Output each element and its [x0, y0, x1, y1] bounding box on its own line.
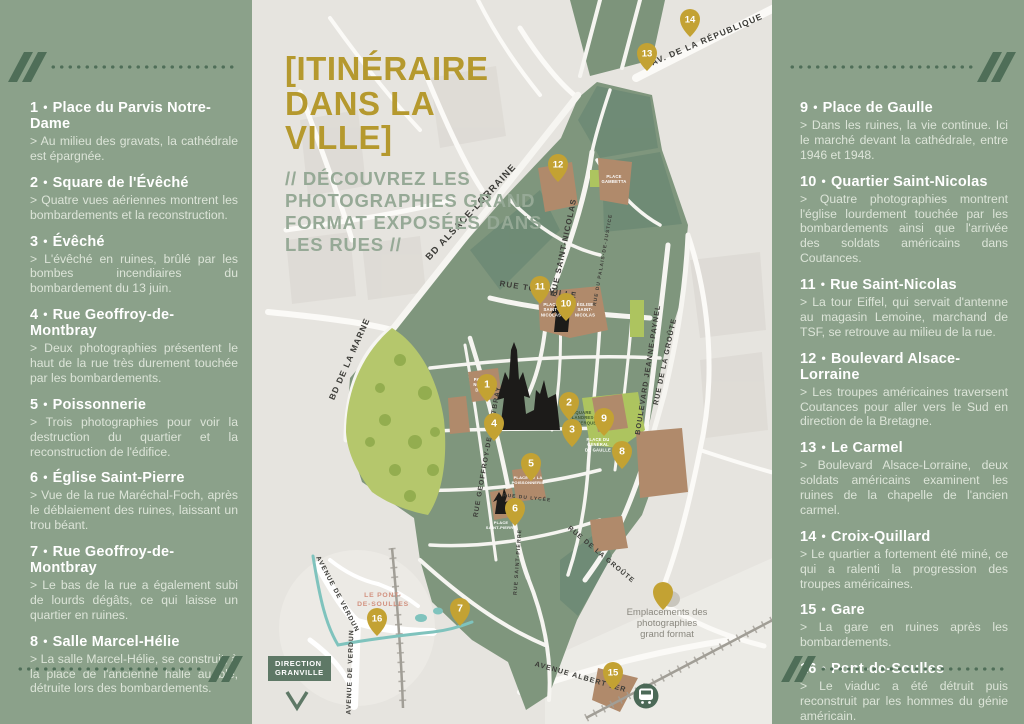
poi-item-3: 3•Évêché> L'évêché en ruines, brûlé par … — [30, 234, 238, 297]
poi-title: 7•Rue Geoffroy-de-Montbray — [30, 544, 238, 576]
title-block: [ITINÉRAIRE DANS LA VILLE] // DÉCOUVREZ … — [285, 52, 550, 257]
poi-description: > La tour Eiffel, qui servait d'antenne … — [800, 295, 1008, 340]
pin-number: 2 — [566, 397, 572, 409]
pin-number: 3 — [569, 424, 575, 436]
train-icon — [634, 684, 659, 709]
poi-title: 13•Le Carmel — [800, 440, 1008, 456]
pin-number: 1 — [484, 379, 490, 391]
poi-item-4: 4•Rue Geoffroy-de-Montbray> Deux photogr… — [30, 307, 238, 386]
poi-item-10: 10•Quartier Saint-Nicolas> Quatre photog… — [800, 174, 1008, 266]
page-subtitle: // DÉCOUVREZ LES PHOTOGRAPHIES GRAND FOR… — [285, 168, 550, 257]
legend-line2: photographies — [637, 618, 697, 629]
poi-item-13: 13•Le Carmel> Boulevard Alsace-Lorraine,… — [800, 440, 1008, 518]
pin-number: 7 — [457, 603, 463, 615]
poi-item-7: 7•Rue Geoffroy-de-Montbray> Le bas de la… — [30, 544, 238, 623]
poi-description: > Deux photographies présentent le haut … — [30, 341, 238, 386]
poi-description: > La gare en ruines après les bombardeme… — [800, 620, 1008, 650]
poi-item-12: 12•Boulevard Alsace-Lorraine> Les troupe… — [800, 351, 1008, 430]
poi-title: 12•Boulevard Alsace-Lorraine — [800, 351, 1008, 383]
left-panel-top-decor — [16, 50, 236, 84]
poi-item-11: 11•Rue Saint-Nicolas> La tour Eiffel, qu… — [800, 277, 1008, 340]
pin-number: 9 — [601, 413, 607, 425]
slashes-icon — [985, 52, 1008, 82]
place-label: ÉGLISESAINT-NICOLAS — [575, 302, 595, 317]
poi-description: > Boulevard Alsace-Lorraine, deux soldat… — [800, 458, 1008, 518]
place-label: PLACE DUGÉNÉRALDE GAULLE — [585, 437, 611, 452]
poi-description: > Le quartier a fortement été miné, ce q… — [800, 547, 1008, 592]
dotted-divider — [16, 667, 205, 671]
pin-number: 15 — [608, 668, 619, 679]
poi-title: 3•Évêché — [30, 234, 238, 250]
pin-number: 16 — [372, 614, 383, 625]
right-panel-bottom-decor — [772, 652, 1024, 686]
left-panel: 1•Place du Parvis Notre-Dame> Au milieu … — [0, 0, 252, 724]
poi-item-1: 1•Place du Parvis Notre-Dame> Au milieu … — [30, 100, 238, 164]
poi-title: 2•Square de l'Évêché — [30, 175, 238, 191]
pin-number: 6 — [512, 503, 518, 515]
poi-item-2: 2•Square de l'Évêché> Quatre vues aérien… — [30, 175, 238, 223]
right-panel-top-decor — [788, 50, 1008, 84]
poi-description: > Quatre photographies montrent l'église… — [800, 192, 1008, 266]
dotted-divider — [788, 65, 975, 69]
dotted-divider — [49, 65, 236, 69]
right-panel: 9•Place de Gaulle> Dans les ruines, la v… — [772, 0, 1024, 724]
dotted-divider — [819, 667, 1008, 671]
slashes-icon — [788, 656, 809, 682]
poi-item-14: 14•Croix-Quillard> Le quartier a forteme… — [800, 529, 1008, 592]
poi-item-5: 5•Poissonnerie> Trois photographies pour… — [30, 397, 238, 460]
pin-number: 8 — [619, 446, 625, 458]
poi-title: 1•Place du Parvis Notre-Dame — [30, 100, 238, 132]
pin-number: 14 — [685, 15, 696, 26]
poi-title: 11•Rue Saint-Nicolas — [800, 277, 1008, 293]
poi-title: 6•Église Saint-Pierre — [30, 470, 238, 486]
pin-number: 5 — [528, 458, 534, 470]
page-title: [ITINÉRAIRE DANS LA VILLE] — [285, 52, 550, 156]
poi-title: 14•Croix-Quillard — [800, 529, 1008, 545]
poi-description: > Au milieu des gravats, la cathédrale e… — [30, 134, 238, 164]
legend-line3: grand format — [640, 629, 694, 640]
poi-description: > Le bas de la rue a également subi de l… — [30, 578, 238, 623]
poi-item-15: 15•Gare> La gare en ruines après les bom… — [800, 602, 1008, 650]
poi-title: 5•Poissonnerie — [30, 397, 238, 413]
poi-title: 4•Rue Geoffroy-de-Montbray — [30, 307, 238, 339]
slashes-icon — [16, 52, 39, 82]
direction-granville-box: DIRECTION GRANVILLE — [268, 656, 331, 681]
pin-number: 10 — [561, 299, 572, 310]
poi-title: 10•Quartier Saint-Nicolas — [800, 174, 1008, 190]
poi-title: 9•Place de Gaulle — [800, 100, 1008, 116]
poi-description: > L'évêché en ruines, brûlé par les bomb… — [30, 252, 238, 297]
poi-description: > Les troupes américaines traversent Cou… — [800, 385, 1008, 430]
pin-number: 11 — [535, 282, 546, 293]
slashes-icon — [215, 656, 236, 682]
legend-line1: Emplacements des — [627, 607, 708, 618]
poi-description: > Quatre vues aériennes montrent les bom… — [30, 193, 238, 223]
poi-description: > Trois photographies pour voir la destr… — [30, 415, 238, 460]
poi-title: 15•Gare — [800, 602, 1008, 618]
pin-number: 4 — [491, 418, 497, 430]
poi-description: > Vue de la rue Maréchal-Foch, après le … — [30, 488, 238, 533]
poi-description: > Dans les ruines, la vie continue. Ici … — [800, 118, 1008, 163]
pin-number: 13 — [642, 49, 653, 60]
inset-label-line2: DE-SOULLES — [357, 601, 409, 608]
poi-item-6: 6•Église Saint-Pierre> Vue de la rue Mar… — [30, 470, 238, 533]
pin-number: 12 — [553, 160, 564, 171]
left-panel-bottom-decor — [0, 652, 252, 686]
inset-label-line1: LE PONT- — [364, 592, 402, 599]
poi-item-9: 9•Place de Gaulle> Dans les ruines, la v… — [800, 100, 1008, 163]
poi-title: 8•Salle Marcel-Hélie — [30, 634, 238, 650]
